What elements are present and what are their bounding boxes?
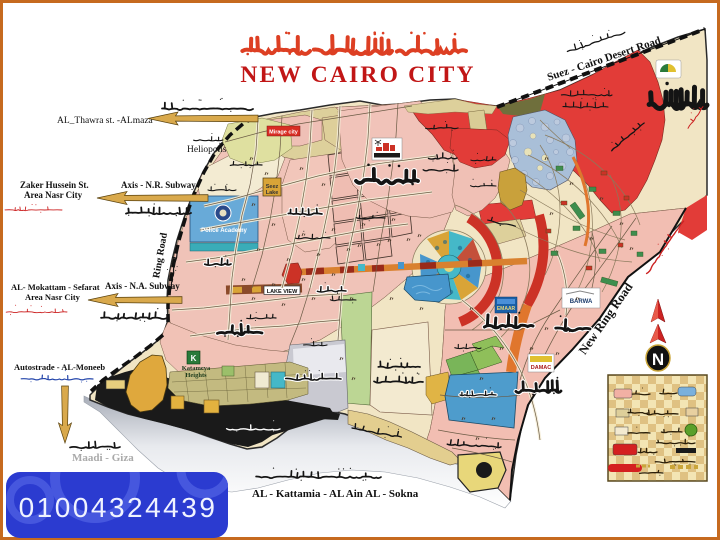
svg-text:BARWA: BARWA	[570, 299, 593, 305]
svg-text:Axis - N.R. Subway: Axis - N.R. Subway	[121, 180, 196, 190]
svg-text:Maadi - Giza: Maadi - Giza	[72, 452, 134, 464]
svg-text:01004324439: 01004324439	[19, 492, 218, 523]
svg-text:NEW CAIRO CITY: NEW CAIRO CITY	[240, 62, 475, 88]
svg-text:Mirage city: Mirage city	[269, 130, 299, 136]
svg-text:AL- Mokattam - Sefarat: AL- Mokattam - Sefarat	[11, 282, 100, 292]
svg-text:Axis - N.A. Subway: Axis - N.A. Subway	[105, 281, 180, 291]
svg-text:AL_Thawra st. -ALmaza: AL_Thawra st. -ALmaza	[57, 116, 154, 126]
svg-text:Heights: Heights	[185, 372, 207, 379]
svg-text:Autostrade - AL-Moneeb: Autostrade - AL-Moneeb	[14, 362, 105, 372]
svg-text:Zaker Hussein St.: Zaker Hussein St.	[20, 180, 89, 190]
svg-text:AL - Kattamia - AL Ain AL - S: AL - Kattamia - AL Ain AL - Sokna	[252, 488, 419, 500]
svg-text:LAKE VIEW: LAKE VIEW	[267, 289, 298, 295]
svg-text:DAMAC: DAMAC	[531, 365, 551, 371]
svg-text:Area Nasr City: Area Nasr City	[24, 190, 83, 200]
svg-text:N: N	[652, 350, 664, 369]
svg-text:Area Nasr City: Area Nasr City	[25, 292, 81, 302]
svg-text:Lake: Lake	[266, 190, 279, 196]
svg-text:Heliopolis: Heliopolis	[187, 145, 227, 155]
svg-text:Police Academy: Police Academy	[201, 228, 247, 234]
svg-text:K: K	[191, 354, 197, 363]
svg-text:EMAAR: EMAAR	[497, 306, 516, 312]
svg-text:Katameya: Katameya	[182, 365, 211, 372]
